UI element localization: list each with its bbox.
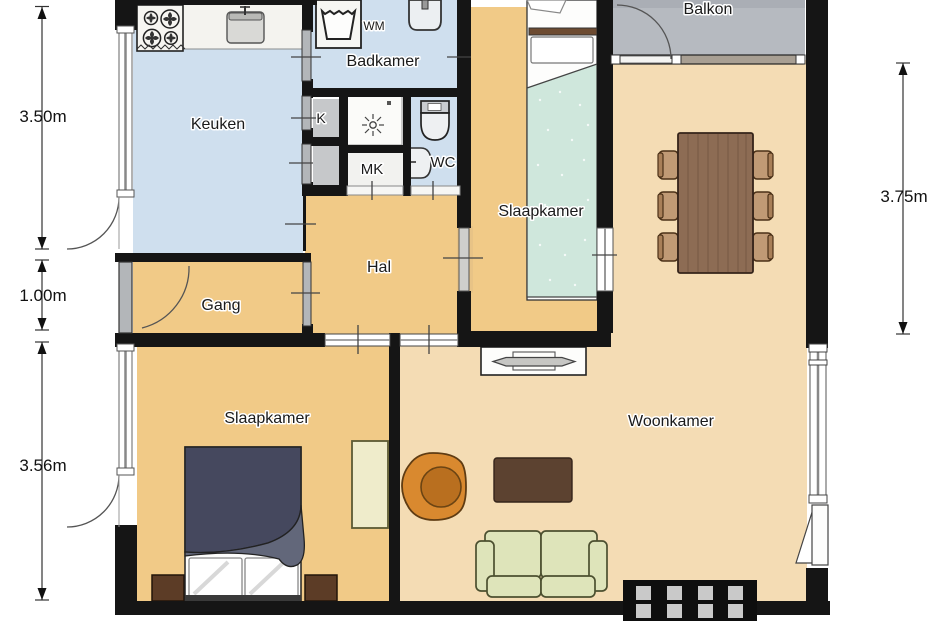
- svg-text:3.50m: 3.50m: [19, 107, 66, 126]
- svg-text:Balkon: Balkon: [684, 1, 733, 18]
- svg-text:1.00m: 1.00m: [19, 286, 66, 305]
- svg-text:Badkamer: Badkamer: [347, 53, 421, 70]
- svg-text:WM: WM: [363, 19, 384, 33]
- svg-text:Slaapkamer: Slaapkamer: [498, 203, 584, 220]
- svg-text:MK: MK: [361, 161, 384, 178]
- svg-text:Hal: Hal: [367, 259, 391, 276]
- svg-text:WC: WC: [431, 154, 456, 171]
- svg-text:3.56m: 3.56m: [19, 456, 66, 475]
- svg-text:Keuken: Keuken: [191, 116, 245, 133]
- svg-text:3.75m: 3.75m: [880, 187, 927, 206]
- svg-text:Gang: Gang: [201, 297, 240, 314]
- svg-text:Slaapkamer: Slaapkamer: [224, 410, 310, 427]
- svg-text:K: K: [316, 110, 326, 126]
- svg-text:Woonkamer: Woonkamer: [628, 413, 715, 430]
